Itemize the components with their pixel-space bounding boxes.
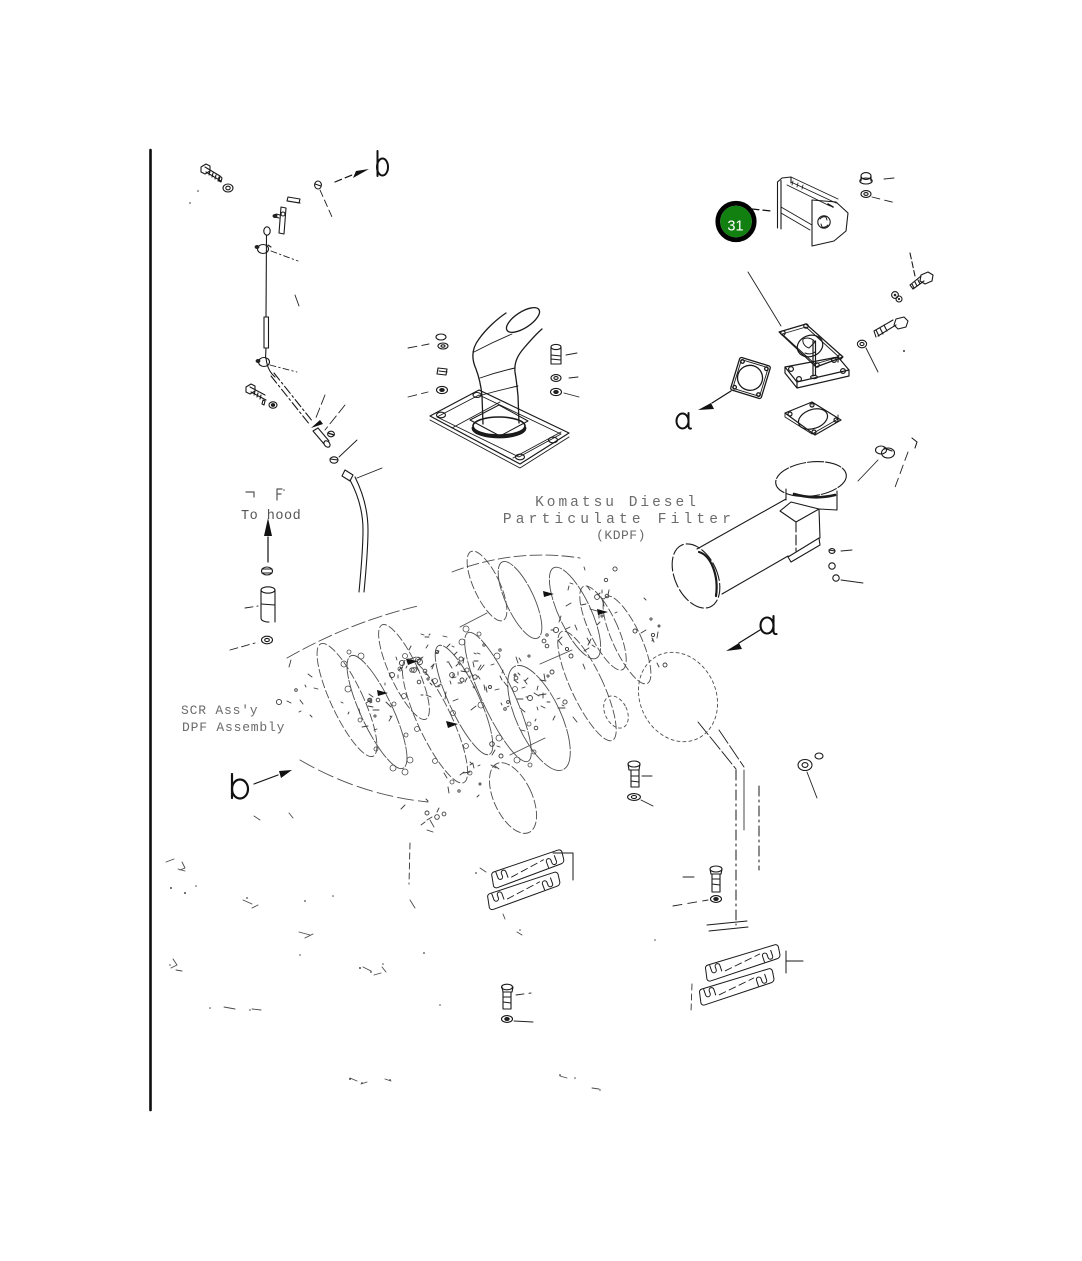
svg-text:Komatsu Diesel: Komatsu Diesel — [535, 495, 699, 511]
svg-text:(KDPF): (KDPF) — [596, 528, 646, 543]
svg-text:Particulate Filter: Particulate Filter — [503, 512, 735, 528]
svg-text:SCR Ass'y: SCR Ass'y — [181, 703, 258, 718]
svg-text:31: 31 — [727, 219, 743, 235]
svg-text:To hood: To hood — [241, 509, 301, 524]
svg-text:DPF Assembly: DPF Assembly — [182, 720, 285, 735]
